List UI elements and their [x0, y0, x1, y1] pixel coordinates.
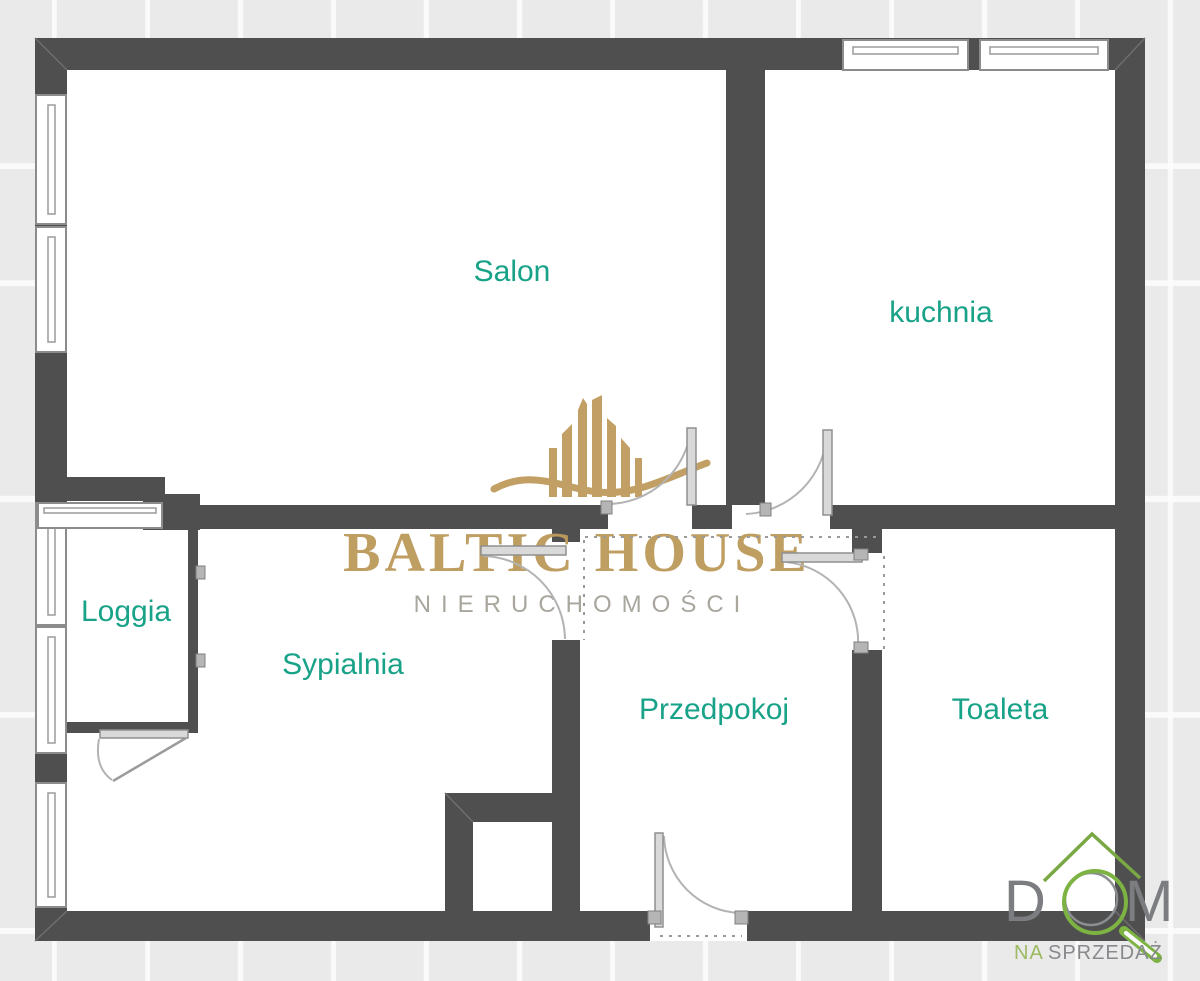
window-casement: [990, 47, 1098, 54]
logo-letter-m: M: [1125, 869, 1173, 934]
window: [980, 40, 1108, 70]
door-jamb: [760, 503, 771, 516]
floor-plan-page: BALTIC HOUSE NIERUCHOMOŚCI: [0, 0, 1200, 981]
door-jamb: [854, 642, 868, 653]
logo-tagline-rest: SPRZEDAŻ: [1048, 941, 1163, 964]
wall: [726, 70, 765, 505]
floor-plan-drawing: BALTIC HOUSE NIERUCHOMOŚCI: [0, 0, 1200, 981]
wall: [35, 38, 1145, 70]
door-jamb: [601, 501, 612, 514]
watermark-subtitle: NIERUCHOMOŚCI: [414, 590, 751, 618]
loggia-wall: [188, 527, 198, 727]
room-label-loggia: Loggia: [81, 595, 171, 628]
window-casement: [853, 47, 958, 54]
wall: [830, 505, 1117, 529]
window-casement: [48, 237, 55, 342]
room-label-bedroom: Sypialnia: [282, 648, 404, 681]
room-label-toilet: Toaleta: [952, 693, 1049, 726]
wall: [552, 640, 580, 911]
wall: [1115, 38, 1145, 941]
door-leaf: [782, 553, 862, 562]
window-casement: [48, 637, 55, 743]
window-handle: [196, 654, 205, 667]
door-leaf: [687, 428, 696, 505]
room-label-kitchen: kuchnia: [889, 296, 993, 329]
door-leaf: [823, 430, 832, 515]
wall: [852, 650, 882, 911]
logo-tagline-accent: NA: [1014, 942, 1044, 964]
door-jamb: [854, 549, 868, 560]
wall: [35, 911, 1145, 941]
room-label-salon: Salon: [474, 255, 551, 288]
window-handle: [196, 566, 205, 579]
room-label-hallway: Przedpokoj: [639, 693, 789, 726]
logo-letter-d: D: [1004, 869, 1046, 934]
door-jamb: [735, 911, 748, 924]
window-casement: [48, 105, 55, 214]
loggia-rail-bar: [44, 508, 156, 513]
door-jamb: [648, 911, 661, 924]
window-casement: [48, 793, 55, 897]
door-leaf: [481, 546, 566, 555]
window: [843, 40, 968, 70]
wall: [445, 793, 473, 911]
loggia-rail: [38, 503, 162, 528]
balcony-door-leaf: [100, 730, 188, 738]
watermark-title: BALTIC HOUSE: [343, 522, 811, 584]
